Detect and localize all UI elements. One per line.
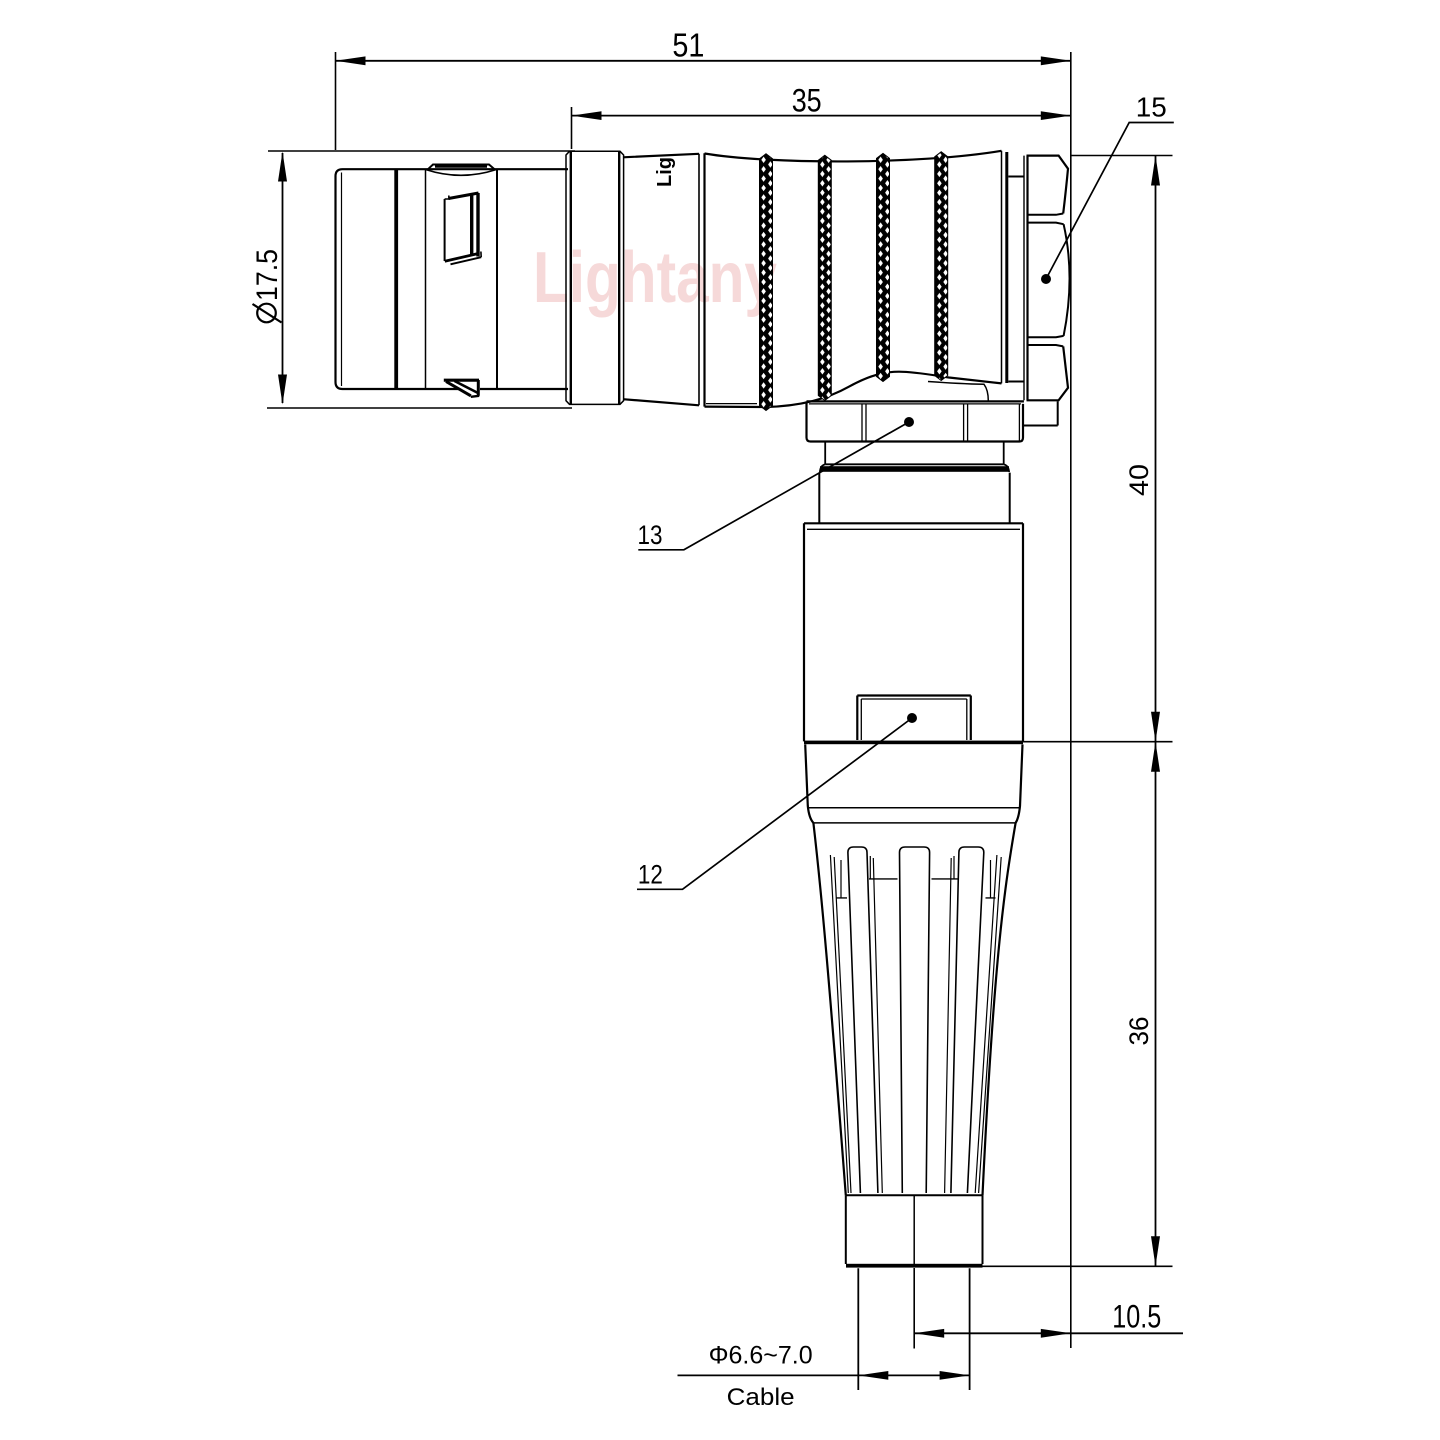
svg-text:35: 35	[792, 82, 822, 118]
svg-text:Lig: Lig	[654, 157, 676, 187]
svg-text:51: 51	[672, 27, 704, 64]
svg-text:Φ6.6~7.0: Φ6.6~7.0	[709, 1342, 813, 1370]
svg-text:12: 12	[638, 860, 663, 890]
svg-text:13: 13	[638, 520, 663, 550]
svg-text:10.5: 10.5	[1112, 1299, 1161, 1335]
svg-text:40: 40	[1124, 464, 1154, 496]
svg-text:15: 15	[1136, 92, 1167, 123]
svg-text:17.5: 17.5	[251, 249, 284, 301]
svg-text:36: 36	[1124, 1017, 1154, 1046]
svg-text:Cable: Cable	[727, 1384, 795, 1411]
